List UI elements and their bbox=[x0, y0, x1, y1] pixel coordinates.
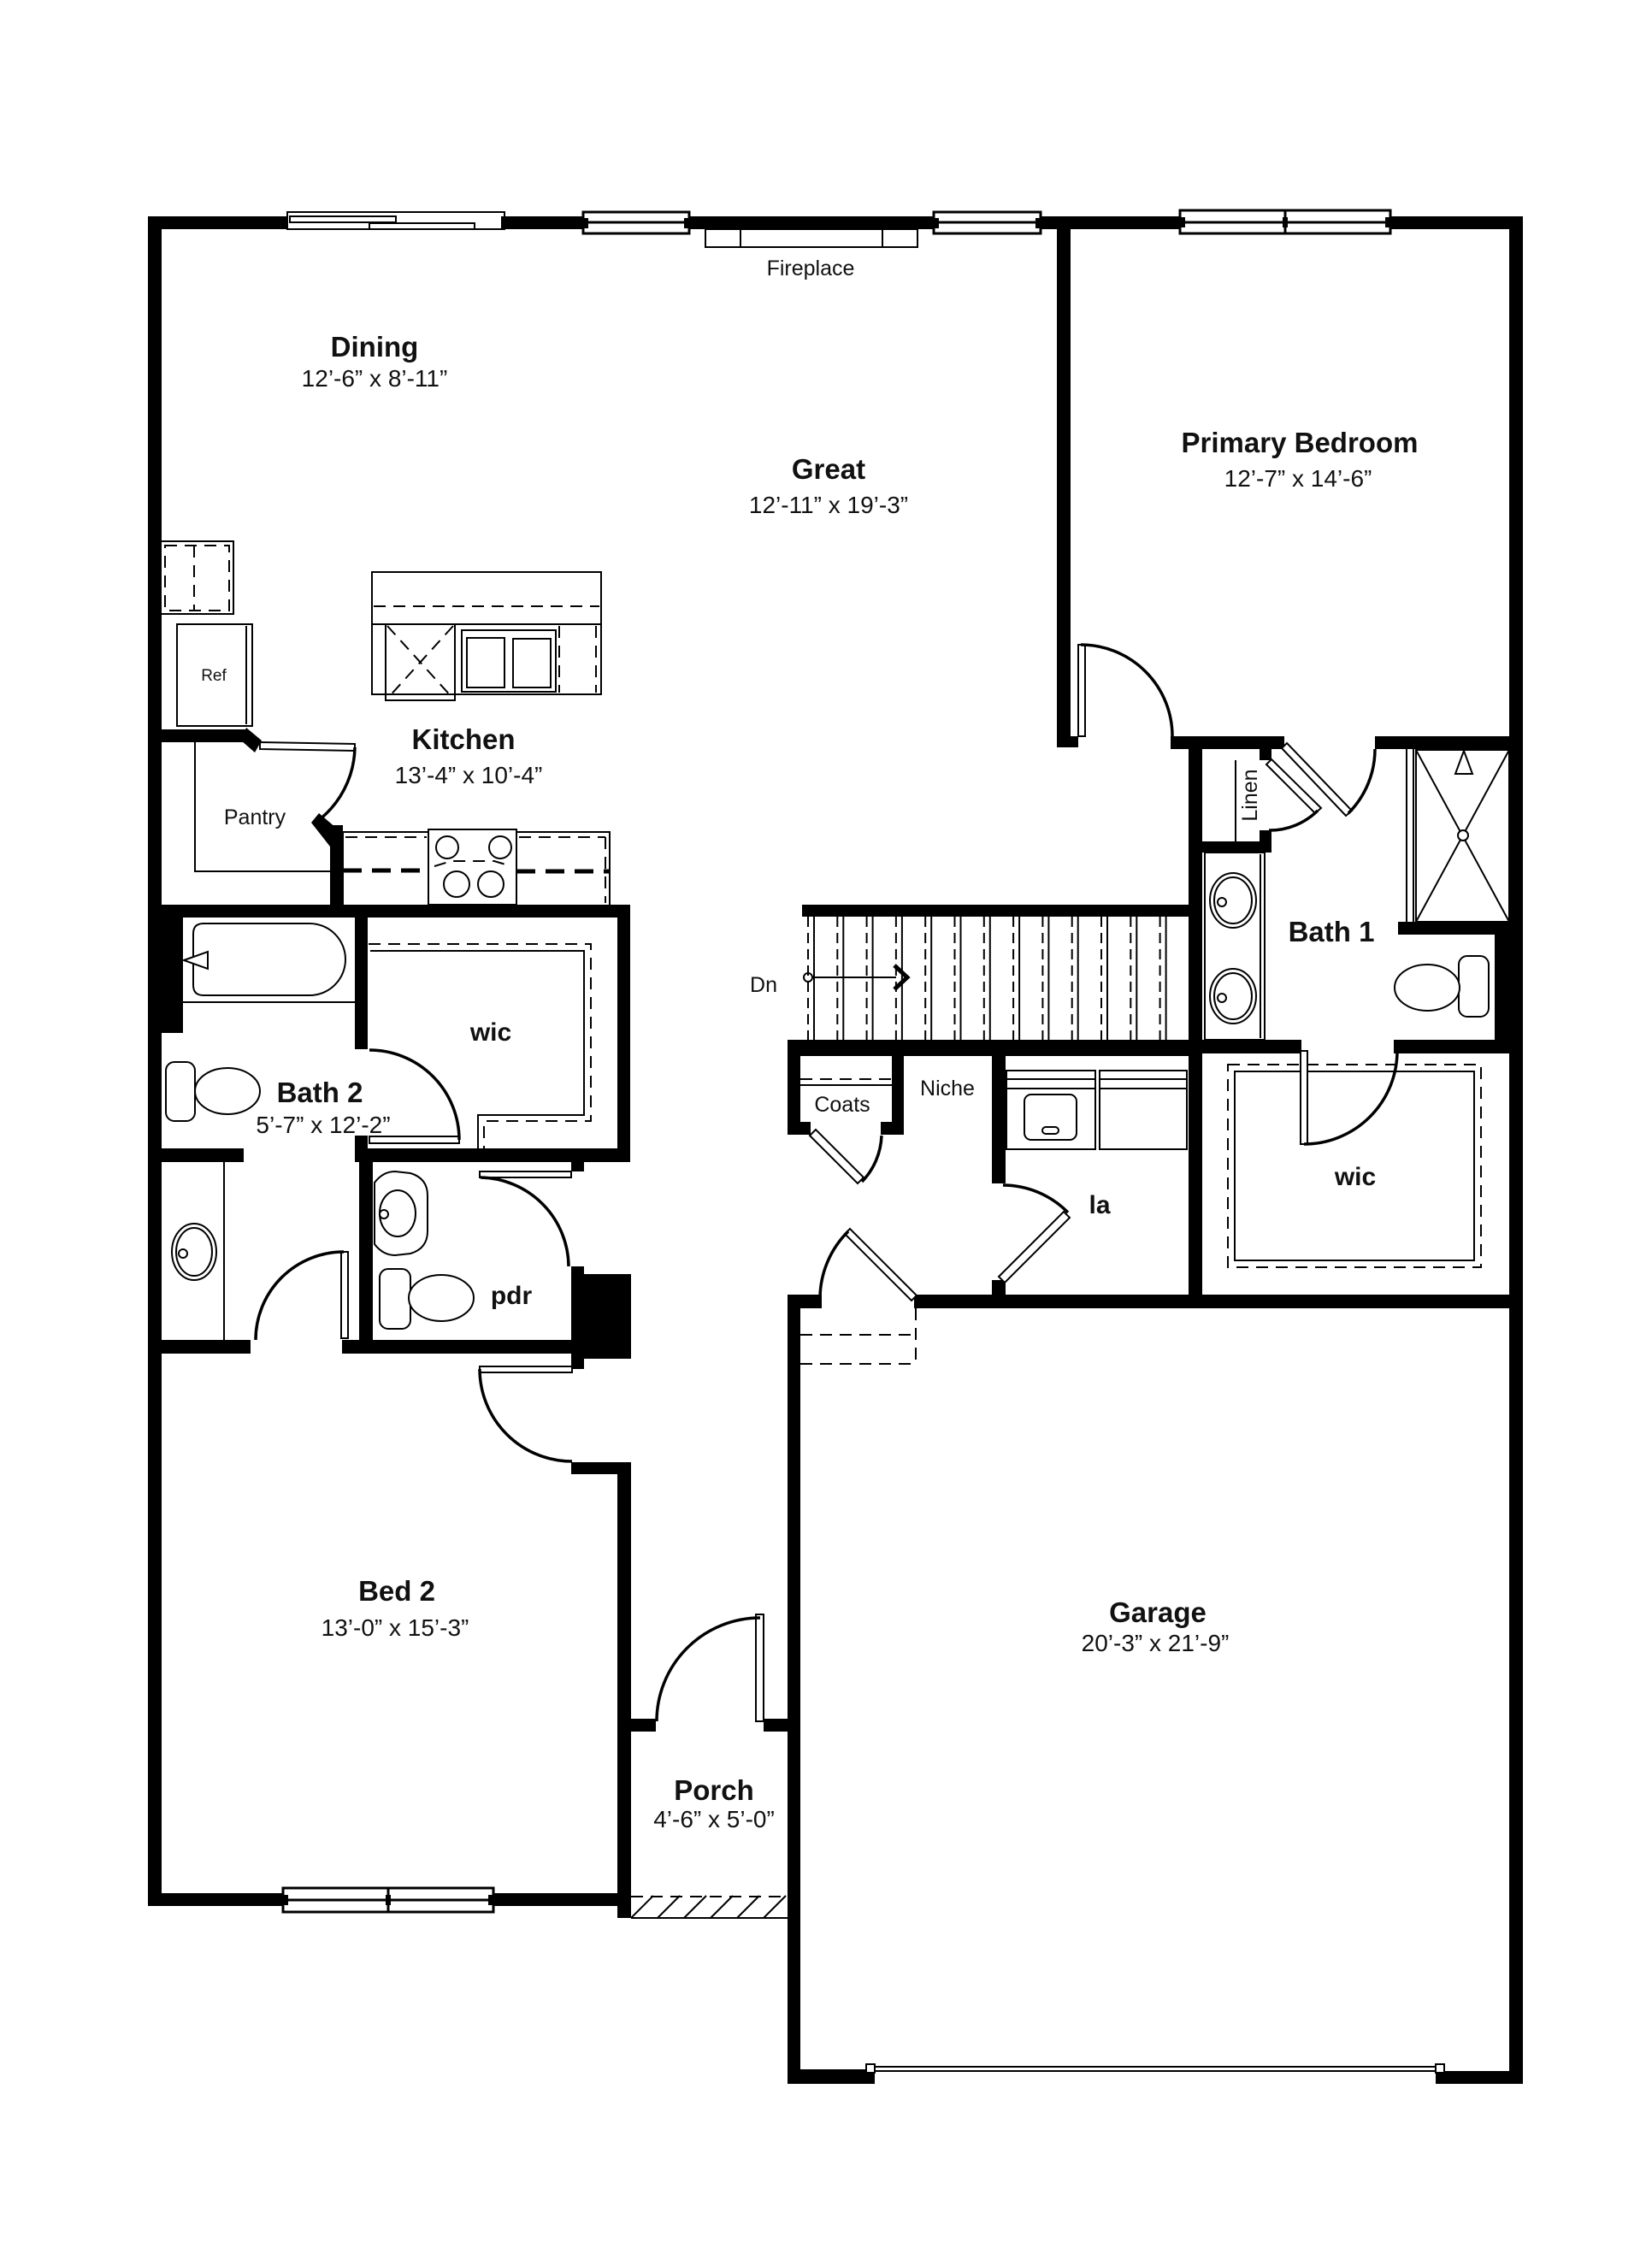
svg-text:4’-6” x 5’-0”: 4’-6” x 5’-0” bbox=[653, 1806, 775, 1832]
svg-text:Fireplace: Fireplace bbox=[767, 257, 855, 280]
svg-text:Bed 2: Bed 2 bbox=[358, 1575, 435, 1607]
svg-text:12’-6” x 8’-11”: 12’-6” x 8’-11” bbox=[302, 365, 448, 392]
svg-text:Pantry: Pantry bbox=[224, 805, 286, 829]
svg-text:13’-0” x 15’-3”: 13’-0” x 15’-3” bbox=[322, 1614, 469, 1641]
svg-text:Garage: Garage bbox=[1109, 1596, 1207, 1628]
svg-text:Bath 2: Bath 2 bbox=[277, 1077, 363, 1108]
svg-text:5’-7” x 12’-2”: 5’-7” x 12’-2” bbox=[256, 1112, 390, 1138]
svg-text:pdr: pdr bbox=[491, 1282, 533, 1310]
svg-text:Linen: Linen bbox=[1238, 769, 1262, 821]
svg-text:Niche: Niche bbox=[920, 1077, 975, 1100]
svg-text:Primary Bedroom: Primary Bedroom bbox=[1182, 427, 1419, 458]
svg-text:20’-3” x 21’-9”: 20’-3” x 21’-9” bbox=[1082, 1630, 1230, 1656]
svg-text:wic: wic bbox=[1334, 1163, 1376, 1191]
svg-text:Great: Great bbox=[792, 453, 865, 485]
svg-text:Kitchen: Kitchen bbox=[411, 723, 515, 755]
svg-text:Bath 1: Bath 1 bbox=[1289, 916, 1375, 947]
svg-text:13’-4” x 10’-4”: 13’-4” x 10’-4” bbox=[395, 762, 543, 788]
svg-text:Dn: Dn bbox=[750, 973, 777, 997]
svg-text:Coats: Coats bbox=[814, 1093, 870, 1117]
svg-text:Ref: Ref bbox=[201, 667, 227, 685]
svg-text:wic: wic bbox=[469, 1018, 511, 1047]
svg-text:12’-11” x 19’-3”: 12’-11” x 19’-3” bbox=[749, 492, 908, 518]
svg-text:Dining: Dining bbox=[331, 331, 419, 363]
svg-text:la: la bbox=[1089, 1191, 1110, 1219]
svg-text:Porch: Porch bbox=[674, 1774, 754, 1806]
svg-text:12’-7” x 14’-6”: 12’-7” x 14’-6” bbox=[1224, 465, 1372, 492]
